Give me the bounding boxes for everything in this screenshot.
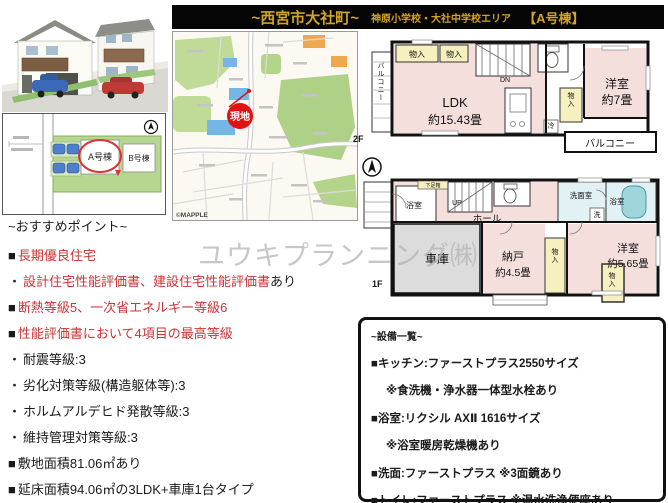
balcony-front <box>22 58 68 71</box>
compass-icon <box>145 121 158 134</box>
room-label-bath-left: 浴室 <box>396 200 432 211</box>
header-bar: ~西宮市大社町~ 神原小学校・大社中学校エリア 【A号棟】 <box>172 5 664 29</box>
point-item: ■性能評価書において4項目の最高等級 <box>8 321 353 347</box>
kitchen-counter <box>505 88 531 133</box>
room-label-storage-size: 約4.5畳 <box>481 265 545 280</box>
exterior-rendering <box>2 11 168 112</box>
room-label-balcony-bottom: バルコニー <box>565 135 655 150</box>
room-label-bedroom-1f: 洋室 <box>600 240 656 256</box>
room-label-ldk-size: 約15.43畳 <box>405 111 505 128</box>
fridge-marker: 冷 <box>544 121 558 131</box>
room-label-washroom: 洗面室 <box>559 190 603 201</box>
room-label-bedroom-2f-size: 約7畳 <box>587 91 647 108</box>
room-label-bath: 浴室 <box>604 196 630 207</box>
point-item: ■断熱等級5、一次省エネルギー等級6 <box>8 295 353 321</box>
point-item: ・劣化対策等級(構造躯体等):3 <box>8 373 353 399</box>
equipment-item: ■浴室:リクシル AXⅡ 1616サイズ <box>371 410 663 426</box>
real-estate-flyer: ~西宮市大社町~ 神原小学校・大社中学校エリア 【A号棟】 <box>0 0 668 503</box>
point-item: ・ホルムアルデヒド発散等級:3 <box>8 399 353 425</box>
site-plan: A号棟 B号棟 <box>2 113 166 215</box>
room-label-closet3: 物入 <box>565 92 575 108</box>
point-item: ■長期優良住宅 <box>8 243 353 269</box>
site-marker-label: 現地 <box>230 110 250 123</box>
floor1-label: 1F <box>372 279 383 289</box>
room-label-ldk: LDK <box>410 95 500 110</box>
house-illustration <box>2 11 168 112</box>
equipment-title: ~設備一覧~ <box>371 328 663 343</box>
room-label-garage: 車庫 <box>407 250 467 267</box>
shoe-box-label: 下足箱 <box>419 182 447 189</box>
point-item: ■敷地面積81.06㎡あり <box>8 451 353 477</box>
location-map: 現地 ©MAPPLE <box>172 31 358 221</box>
red-car <box>102 82 144 94</box>
room-label-storage: 納戸 <box>483 248 543 264</box>
unit-label: 【A号棟】 <box>523 8 584 27</box>
room-label-balcony-left: バルコニー <box>375 62 385 102</box>
recommend-points: ~おすすめポイント~ ■長期優良住宅 ・設計住宅性能評価書、建設住宅性能評価書あ… <box>8 216 353 503</box>
school-area-subtitle: 神原小学校・大社中学校エリア <box>371 10 511 25</box>
point-item: ・維持管理対策等級:3 <box>8 425 353 451</box>
room-label-closet-1f-2: 物入 <box>606 272 616 288</box>
page-title: ~西宮市大社町~ <box>252 7 360 28</box>
stairs-up-label: UP <box>447 200 467 207</box>
room-label-closet-1f-1: 物入 <box>549 248 559 264</box>
points-title: ~おすすめポイント~ <box>8 216 353 235</box>
floor2-label: 2F <box>353 134 364 144</box>
north-compass-icon <box>361 156 383 178</box>
entrance-porch <box>364 182 392 228</box>
roof-front <box>14 20 96 43</box>
point-item: ・設計住宅性能評価書、建設住宅性能評価書あり <box>8 269 353 295</box>
room-label-hall: ホール <box>462 211 512 225</box>
toilet-icon <box>546 46 559 68</box>
room-label-bedroom-1f-size: 約5.65畳 <box>596 256 660 271</box>
building-block <box>303 35 325 48</box>
building-a-label: A号棟 <box>88 151 112 162</box>
building-b-label: B号棟 <box>128 153 149 163</box>
point-item: ・耐震等級:3 <box>8 347 353 373</box>
washer-marker: 洗 <box>590 210 604 220</box>
equipment-item: ※浴室暖房乾燥機あり <box>371 437 663 453</box>
equipment-item: ■洗面:ファーストプラス ※3面鏡あり <box>371 465 663 481</box>
equipment-item: ※食洗機・浄水器一体型水栓あり <box>371 382 663 398</box>
point-item: ■延床面積94.06㎡の3LDK+車庫1台タイプ <box>8 477 353 503</box>
dimension-lines <box>9 141 43 147</box>
room-label-bedroom-2f: 洋室 <box>587 75 647 92</box>
room-label-closet2: 物入 <box>440 49 468 60</box>
equipment-list: ~設備一覧~ ■キッチン:ファーストプラス2550サイズ ※食洗機・浄水器一体型… <box>358 317 666 502</box>
pond <box>223 58 237 67</box>
room-label-closet1: 物入 <box>396 49 438 60</box>
toilet-icon <box>504 184 517 203</box>
blue-car <box>32 80 68 92</box>
closet-1f-1 <box>545 238 565 293</box>
kitchen-sink-icon <box>510 94 526 112</box>
equipment-item: ■キッチン:ファーストプラス2550サイズ <box>371 355 663 371</box>
stairs-dn-label: DN <box>495 77 515 84</box>
balcony-back <box>104 49 144 62</box>
equipment-item: ■トイレ:ファーストプラス ※温水洗浄便座あり <box>371 492 663 503</box>
